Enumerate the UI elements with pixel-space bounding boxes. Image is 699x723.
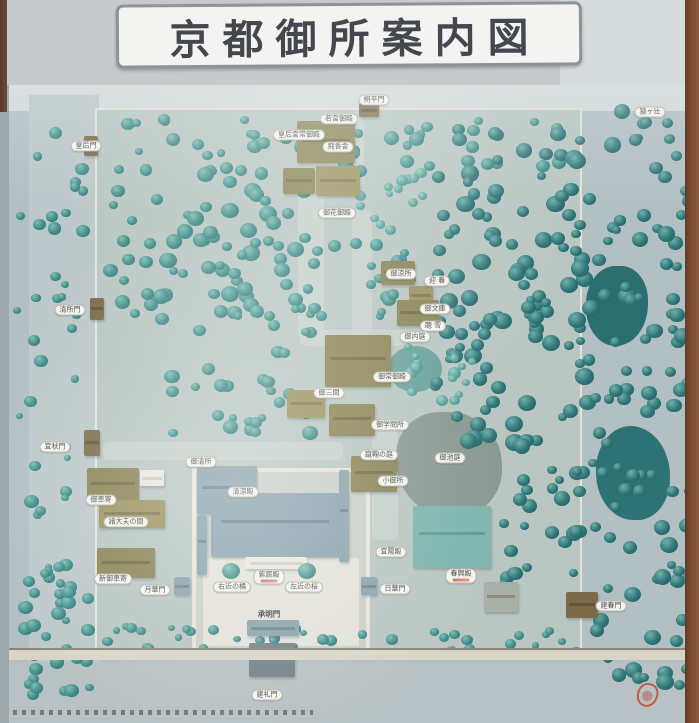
forest-tree [299, 233, 311, 243]
forest-tree [33, 152, 42, 160]
forest-tree [525, 268, 538, 280]
roof-ridge [91, 482, 135, 485]
forest-tree [255, 167, 269, 179]
signboard-frame-left [0, 0, 7, 112]
forest-tree [153, 289, 169, 303]
map-label: 迎 春 [424, 276, 450, 287]
forest-tree [237, 282, 253, 296]
forest-tree [554, 491, 570, 505]
forest-tree [535, 232, 553, 248]
map-label: 蹴鞠の庭 [360, 450, 398, 461]
forest-tree [667, 561, 676, 569]
forest-tree [499, 519, 509, 528]
forest-tree [592, 254, 606, 266]
forest-tree [654, 520, 671, 535]
forest-tree [64, 684, 79, 697]
forest-tree [520, 522, 529, 530]
roof-ridge [569, 603, 596, 606]
forest-tree [514, 631, 524, 640]
forest-tree [654, 569, 671, 584]
forest-tree [604, 137, 621, 152]
southeast-enclosure [484, 582, 518, 612]
forest-tree [354, 129, 363, 137]
forest-tree [202, 363, 215, 375]
forest-tree [436, 395, 448, 406]
forest-tree [604, 532, 616, 543]
map-label: 御常御殿 [373, 372, 411, 383]
forest-tree [222, 242, 231, 251]
forest-tree [674, 680, 685, 690]
forest-tree [593, 427, 606, 439]
forest-tree [462, 379, 470, 386]
building-shunkoden [413, 506, 491, 568]
roof-ridge [411, 294, 431, 297]
forest-tree [308, 258, 320, 269]
forest-tree [140, 164, 153, 175]
forest-tree [217, 149, 225, 157]
forest-tree [449, 630, 459, 639]
map-label: 月華門 [140, 585, 171, 596]
gate-gishumon [84, 430, 100, 456]
forest-tree [197, 167, 214, 182]
forest-tree [16, 212, 25, 220]
title-banner: 京都御所案内図 [116, 1, 582, 68]
forest-tree [564, 341, 574, 350]
forest-tree [572, 467, 582, 476]
forest-tree [102, 637, 113, 647]
forest-tree [444, 230, 453, 239]
forest-tree [558, 638, 566, 645]
forest-tree [115, 295, 130, 308]
map-label: 宜秋門 [40, 442, 71, 453]
forest-tree [130, 309, 140, 318]
forest-tree [598, 289, 613, 302]
forest-tree [203, 226, 217, 239]
forest-tree [223, 420, 238, 433]
forest-tree [583, 193, 596, 205]
forest-tree [358, 630, 367, 638]
forest-tree [662, 118, 673, 128]
forest-tree [234, 312, 242, 319]
map-label: 諸大夫の間 [104, 517, 149, 528]
map-label: 建春門 [596, 601, 627, 612]
forest-tree [656, 674, 674, 690]
forest-tree [582, 300, 600, 316]
building-ogakumonjo [329, 404, 375, 436]
forest-tree [403, 141, 413, 150]
forest-tree [671, 151, 682, 161]
forest-tree [76, 225, 90, 238]
forest-tree [67, 324, 77, 333]
roof-ridge [250, 562, 302, 565]
forest-tree [421, 122, 433, 133]
forest-tree [609, 384, 623, 397]
forest-tree [250, 427, 261, 437]
forest-tree [629, 134, 643, 146]
building-north-annex-east [316, 166, 360, 196]
forest-tree [260, 196, 271, 206]
forest-tree [489, 235, 502, 247]
forest-tree [666, 293, 680, 306]
forest-tree [574, 220, 585, 230]
map-label: 御文庫 [420, 304, 451, 315]
forest-tree [61, 209, 70, 217]
forest-tree [621, 366, 632, 376]
forest-tree [530, 118, 539, 126]
gravel-path [103, 442, 343, 460]
forest-tree [26, 619, 41, 632]
forest-tree [547, 466, 557, 475]
map-label: 春興殿 [446, 569, 477, 584]
roof-ridge [91, 307, 103, 310]
forest-tree [603, 584, 613, 593]
forest-tree [539, 148, 552, 160]
gate-jomeimon [247, 620, 299, 636]
forest-tree [463, 177, 474, 187]
roof-ridge [142, 477, 162, 480]
forest-tree [620, 282, 631, 292]
forest-tree [488, 184, 504, 198]
forest-tree [632, 232, 648, 247]
forest-tree [144, 238, 156, 249]
forest-tree [612, 226, 621, 234]
forest-tree [303, 284, 313, 293]
sakon-cherry-tree [298, 563, 316, 579]
forest-tree [81, 624, 94, 636]
gate-gekkamon [174, 577, 190, 595]
forest-tree [317, 634, 329, 645]
forest-tree [458, 363, 466, 370]
forest-tree [273, 241, 285, 251]
forest-tree [660, 537, 678, 553]
forest-tree [404, 343, 411, 350]
forest-tree [518, 395, 536, 411]
forest-tree [370, 239, 383, 251]
roof-ridge [175, 585, 188, 588]
forest-tree [287, 242, 304, 257]
roof-ridge [198, 540, 206, 543]
forest-tree [468, 188, 481, 199]
forest-tree [666, 486, 679, 498]
forest-tree [212, 410, 224, 421]
forest-tree [634, 293, 644, 302]
gate-kenshunmon [566, 592, 598, 618]
map-label: 猿ヶ辻 [635, 107, 666, 118]
forest-tree [658, 171, 671, 183]
forest-tree [575, 368, 594, 385]
forest-tree [551, 232, 565, 245]
map-label: 皇后宮常御殿 [273, 130, 325, 141]
forest-tree [576, 337, 585, 345]
forest-tree [164, 370, 179, 384]
forest-tree [202, 151, 213, 161]
roof-ridge [333, 417, 372, 420]
forest-tree [193, 325, 206, 337]
forest-tree [316, 311, 327, 321]
sign-title: 京都御所案内図 [157, 4, 540, 67]
forest-tree [50, 272, 60, 281]
forest-tree [613, 463, 623, 472]
forest-tree [250, 417, 262, 428]
roof-ridge [320, 179, 357, 182]
roof-ridge [340, 509, 348, 512]
gate-nikkamon [361, 577, 377, 595]
forest-tree [573, 486, 586, 497]
forest-tree [642, 366, 653, 376]
forest-tree [545, 526, 559, 539]
forest-tree [588, 459, 598, 468]
map-label: 飛香舎 [323, 142, 354, 153]
forest-tree [570, 246, 581, 256]
forest-tree [407, 388, 416, 396]
forest-tree [448, 269, 465, 284]
forest-tree [430, 628, 438, 636]
forest-tree [623, 541, 638, 554]
forest-tree [385, 225, 396, 235]
forest-tree [590, 393, 601, 403]
forest-tree [640, 117, 652, 128]
corridor-east [339, 470, 349, 562]
signboard-frame-right [685, 0, 699, 723]
forest-tree [41, 632, 51, 641]
forest-tree [266, 387, 276, 396]
forest-tree [517, 474, 530, 486]
outer-fence [13, 710, 313, 715]
forest-tree [85, 684, 93, 691]
map-label: 御学問所 [371, 420, 409, 431]
forest-tree [49, 127, 62, 139]
forest-tree [431, 377, 443, 387]
forest-tree [257, 137, 270, 149]
forest-tree [53, 562, 65, 573]
forest-tree [182, 625, 191, 633]
furigana-mark [453, 579, 470, 582]
forest-tree [141, 288, 155, 300]
forest-tree [356, 202, 365, 210]
map-label: 御涼所 [386, 269, 417, 280]
forest-tree [158, 114, 169, 124]
furigana-mark [261, 580, 278, 583]
forest-tree [644, 630, 661, 645]
forest-tree [568, 312, 586, 328]
forest-tree [547, 483, 559, 493]
building-shishinden [211, 493, 339, 557]
forest-tree [113, 627, 120, 634]
forest-tree [221, 203, 239, 219]
corridor-west [197, 515, 207, 575]
forest-tree [312, 246, 323, 256]
building-kogosho [351, 456, 397, 492]
map-label: 宜陽殿 [376, 547, 407, 558]
forest-tree [250, 305, 264, 318]
forest-tree [506, 239, 518, 250]
forest-tree [669, 308, 684, 322]
map-label: 御池庭 [435, 453, 466, 464]
forest-tree [370, 215, 378, 223]
forest-tree [665, 367, 676, 377]
forest-tree [400, 249, 409, 257]
map-label: 清所門 [55, 305, 86, 316]
forest-tree [394, 185, 403, 193]
map-label: 清涼殿 [228, 487, 259, 498]
forest-tree [350, 238, 362, 249]
map-label: 御車寄 [86, 495, 117, 506]
forest-tree [377, 308, 386, 316]
forest-tree [545, 627, 554, 635]
forest-tree [29, 461, 41, 472]
forest-tree [518, 280, 529, 290]
map-label: 御三間 [314, 388, 345, 399]
roof-ridge [104, 512, 159, 515]
roof-ridge [221, 520, 329, 523]
forest-tree [396, 175, 408, 185]
forest-tree [633, 485, 646, 497]
map-label: 若宮御殿 [320, 114, 358, 125]
forest-tree [542, 335, 560, 351]
forest-tree [61, 281, 69, 288]
forest-tree [461, 290, 478, 306]
forest-tree [58, 293, 66, 300]
map-label: 御内庭 [400, 332, 431, 343]
map-label: 御花御殿 [318, 208, 356, 219]
forest-tree [646, 324, 662, 339]
roof-ridge [251, 627, 295, 630]
forest-tree [575, 136, 585, 145]
forest-tree [603, 237, 612, 245]
forest-tree [301, 328, 310, 336]
photo-left-edge [0, 85, 9, 723]
forest-tree [62, 586, 76, 599]
forest-tree [274, 397, 285, 407]
forest-tree [261, 376, 274, 388]
forest-tree [483, 313, 497, 325]
forest-tree [208, 289, 219, 299]
forest-tree [291, 305, 300, 313]
roof-ridge [361, 109, 378, 112]
forest-tree [562, 209, 576, 222]
forest-tree [264, 311, 275, 321]
signboard-photo: 朔平門猿ヶ辻皇后門若宮御殿皇后宮常御殿飛香舎御花御殿清所門御涼所迎 春御文庫聴 … [0, 0, 699, 723]
forest-tree [637, 209, 651, 222]
forest-tree [516, 143, 533, 158]
forest-tree [16, 413, 23, 420]
forest-tree [558, 413, 567, 421]
forest-tree [473, 372, 488, 385]
forest-tree [460, 433, 477, 449]
forest-tree [214, 379, 229, 392]
forest-tree [250, 238, 261, 248]
forest-tree [127, 216, 137, 225]
forest-tree [536, 160, 550, 172]
forest-tree [488, 127, 502, 139]
building-carriage-court [140, 470, 164, 486]
forest-tree [658, 226, 675, 241]
forest-tree [610, 502, 621, 512]
roof-ridge [419, 532, 485, 535]
forest-tree [571, 230, 580, 238]
forest-tree [666, 399, 681, 413]
roof-ridge [355, 471, 394, 474]
roof-ridge [330, 357, 385, 360]
forest-tree [75, 163, 88, 175]
forest-tree [660, 258, 674, 270]
forest-tree [664, 134, 675, 144]
forest-tree [618, 483, 633, 496]
forest-tree [624, 587, 641, 602]
forest-tree [159, 253, 176, 269]
forest-tree [200, 202, 211, 212]
map-label: 朔平門 [359, 95, 390, 106]
roof-ridge [290, 402, 322, 405]
map-label: 建礼門 [252, 690, 283, 701]
roof-ridge [85, 441, 98, 444]
forest-tree [466, 141, 478, 152]
forest-tree [302, 426, 318, 440]
forest-tree [455, 328, 468, 339]
forest-tree [670, 635, 683, 647]
forest-tree [282, 208, 294, 219]
forest-tree [82, 593, 95, 604]
gate-seishomon [90, 298, 104, 320]
forest-tree [122, 254, 134, 265]
forest-tree [61, 495, 68, 502]
forest-tree [640, 405, 655, 418]
forest-tree [528, 330, 543, 344]
forest-tree [166, 386, 179, 397]
forest-tree [541, 298, 551, 307]
roof-ridge [102, 561, 151, 564]
forest-tree [328, 240, 341, 252]
map-label: 紫宸殿 [254, 570, 285, 585]
roof-ridge [362, 585, 375, 588]
forest-tree [514, 438, 531, 453]
forest-tree [177, 224, 194, 239]
forest-tree [450, 354, 459, 362]
roof-ridge [487, 595, 516, 598]
forest-tree [23, 576, 35, 587]
map-label: 承明門 [258, 610, 281, 618]
forest-tree [13, 307, 21, 314]
roof-ridge [286, 179, 313, 182]
forest-tree [235, 165, 247, 176]
map-label: 御清所 [186, 457, 217, 468]
forest-tree [117, 235, 130, 247]
ukon-orange-tree [222, 563, 240, 579]
forest-tree [507, 567, 522, 581]
map-label: 皇后門 [71, 141, 102, 152]
forest-tree [31, 294, 40, 302]
south-wall [9, 648, 685, 660]
map-label: 聴 雪 [420, 321, 446, 332]
forest-tree [575, 359, 585, 368]
forest-tree [410, 362, 421, 372]
forest-tree [449, 396, 460, 406]
forest-tree [237, 250, 247, 259]
forest-tree [386, 634, 398, 645]
forest-tree [474, 117, 483, 125]
forest-tree [114, 165, 124, 174]
map-label: 新御車寄 [94, 574, 132, 585]
forest-tree [437, 210, 450, 221]
forest-tree [187, 211, 204, 226]
forest-tree [568, 153, 586, 169]
forest-tree [590, 522, 601, 532]
forest-tree [590, 624, 604, 636]
map-label: 日華門 [380, 584, 411, 595]
forest-tree [139, 256, 152, 268]
forest-tree [672, 262, 682, 271]
forest-tree [111, 185, 125, 197]
